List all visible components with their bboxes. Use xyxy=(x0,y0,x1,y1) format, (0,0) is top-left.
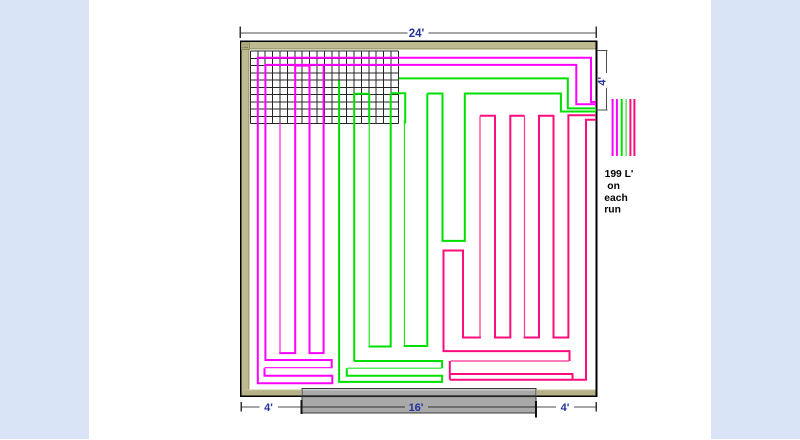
svg-text:4': 4' xyxy=(264,402,273,414)
svg-text:on: on xyxy=(607,181,620,192)
svg-text:24': 24' xyxy=(409,28,425,40)
svg-text:199 L': 199 L' xyxy=(605,169,634,180)
svg-text:run: run xyxy=(604,205,621,216)
svg-text:each: each xyxy=(604,193,627,204)
svg-text:4': 4' xyxy=(561,402,570,414)
svg-text:16': 16' xyxy=(409,402,424,414)
svg-text:4': 4' xyxy=(597,77,609,86)
